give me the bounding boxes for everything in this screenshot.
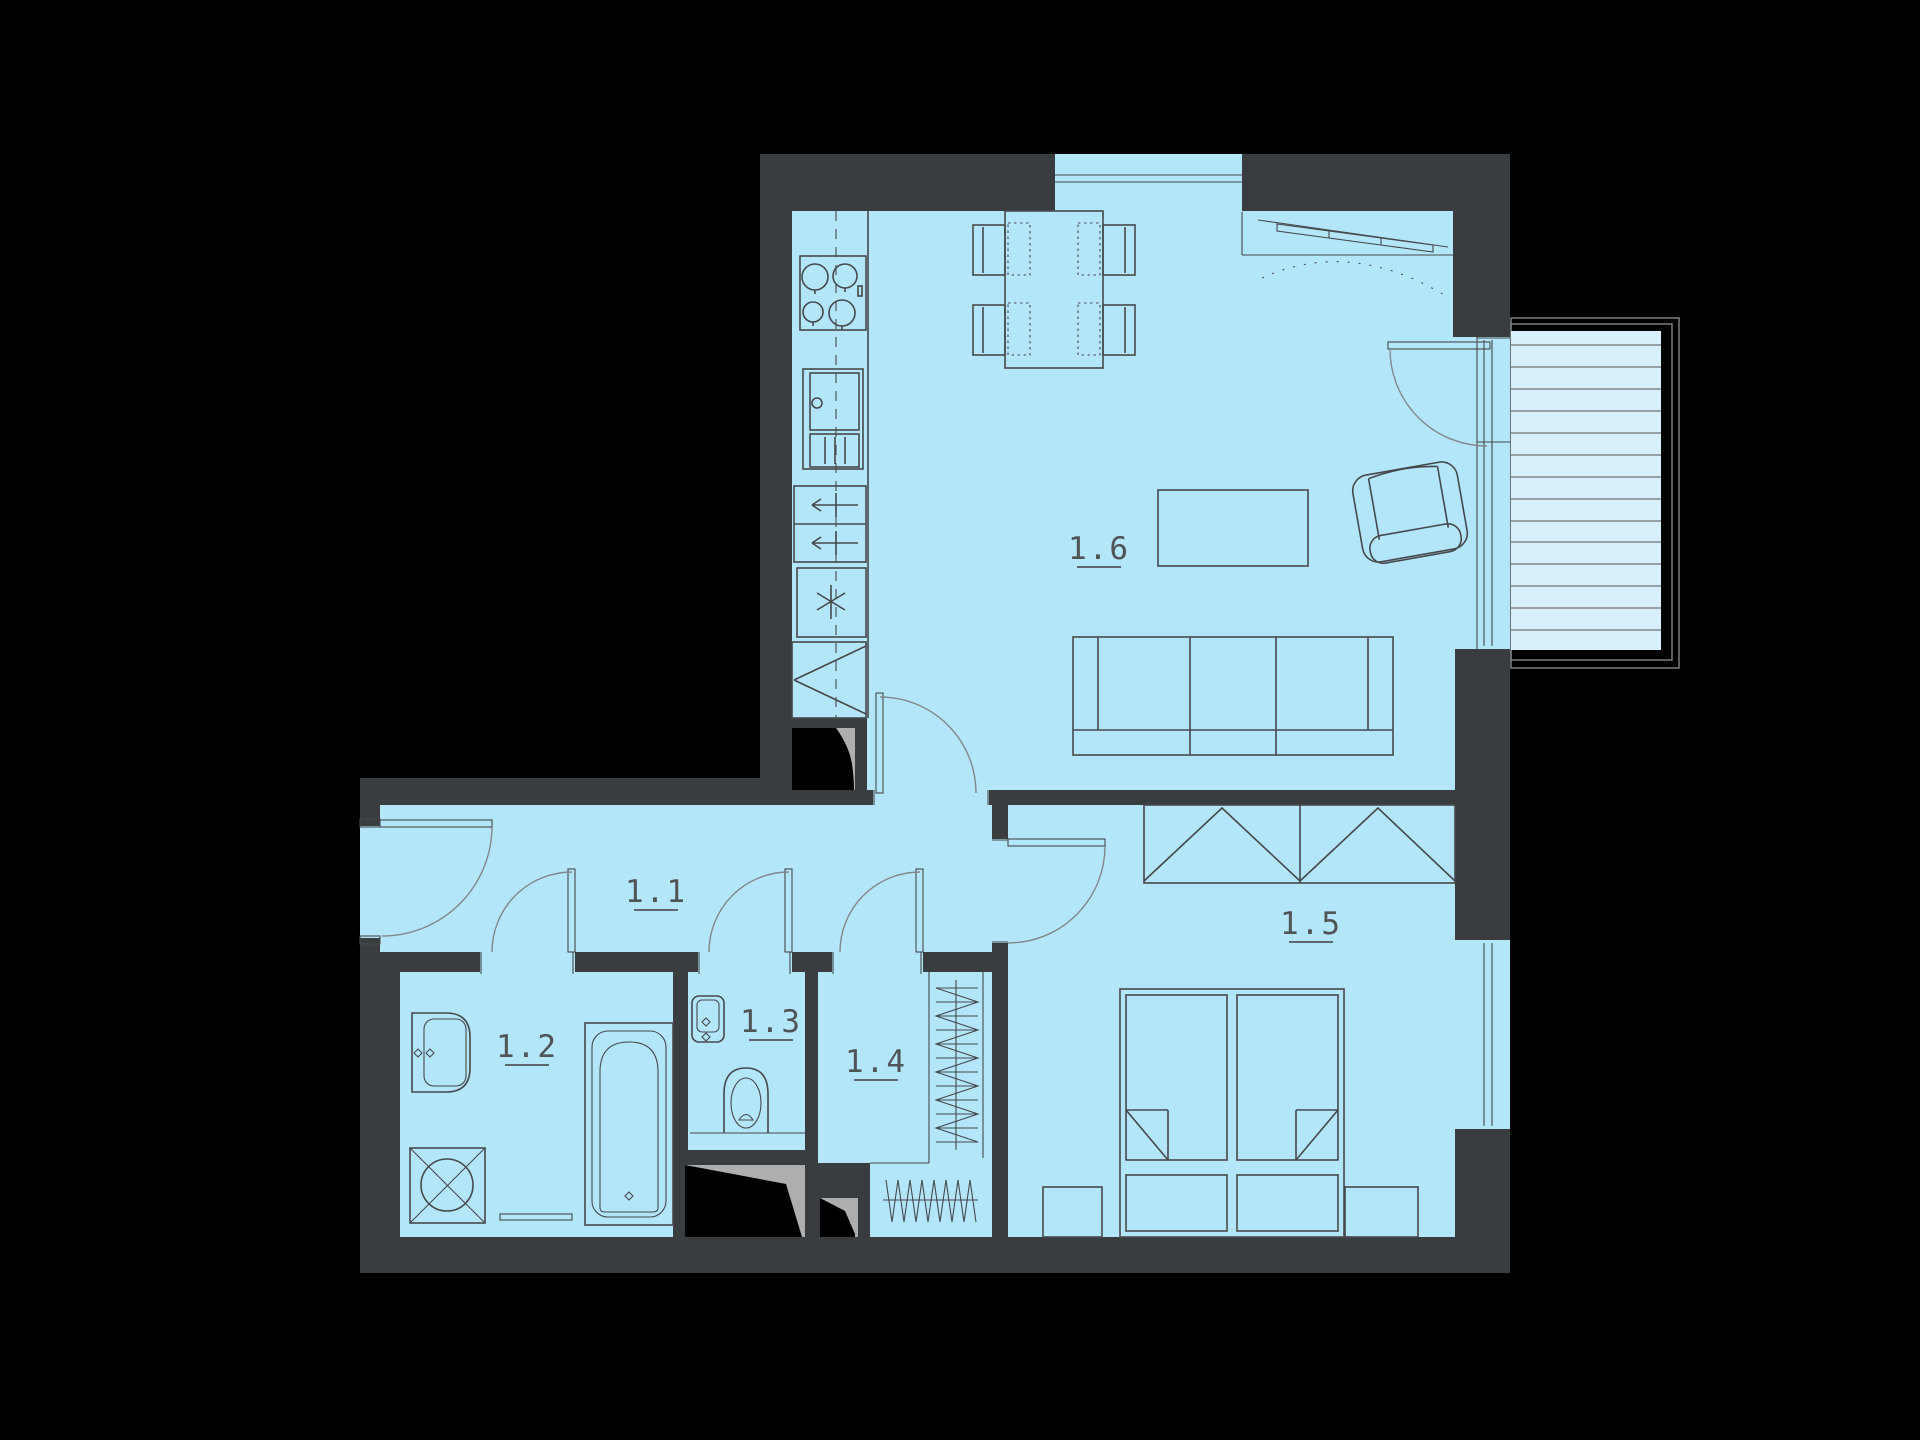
room-wc-floor: [688, 972, 805, 1150]
room-label-1-6: 1.6: [1068, 531, 1130, 567]
room-bedroom-floor: [1008, 805, 1455, 1237]
shaft-below-closet: [820, 1198, 858, 1237]
balcony: [1511, 318, 1679, 668]
window-top: [1055, 154, 1242, 211]
room-label-1-5: 1.5: [1280, 906, 1342, 942]
washing-machine: [410, 1148, 485, 1223]
door-opening-wc: [698, 952, 792, 974]
room-label-1-3: 1.3: [740, 1004, 802, 1040]
room-label-1-1: 1.1: [625, 874, 687, 910]
door-opening-bedroom: [992, 839, 1008, 943]
entry-opening: [360, 819, 380, 944]
door-opening-bathroom: [480, 952, 575, 974]
door-opening-living: [873, 790, 989, 805]
room-label-1-2: 1.2: [496, 1029, 558, 1065]
shaft-below-wc: [685, 1165, 805, 1237]
door-opening-closet: [832, 952, 923, 974]
floor-plan-page: 1.1 1.2 1.3 1.4 1.5 1.6: [0, 0, 1920, 1440]
shaft-kitchen: [792, 728, 855, 790]
room-label-1-4: 1.4: [845, 1044, 907, 1080]
balcony-door-window: [1477, 337, 1510, 649]
room-living-kitchen-floor: [792, 211, 1477, 790]
window-bedroom: [1455, 940, 1510, 1129]
floor-plan-canvas: 1.1 1.2 1.3 1.4 1.5 1.6: [0, 0, 1920, 1440]
